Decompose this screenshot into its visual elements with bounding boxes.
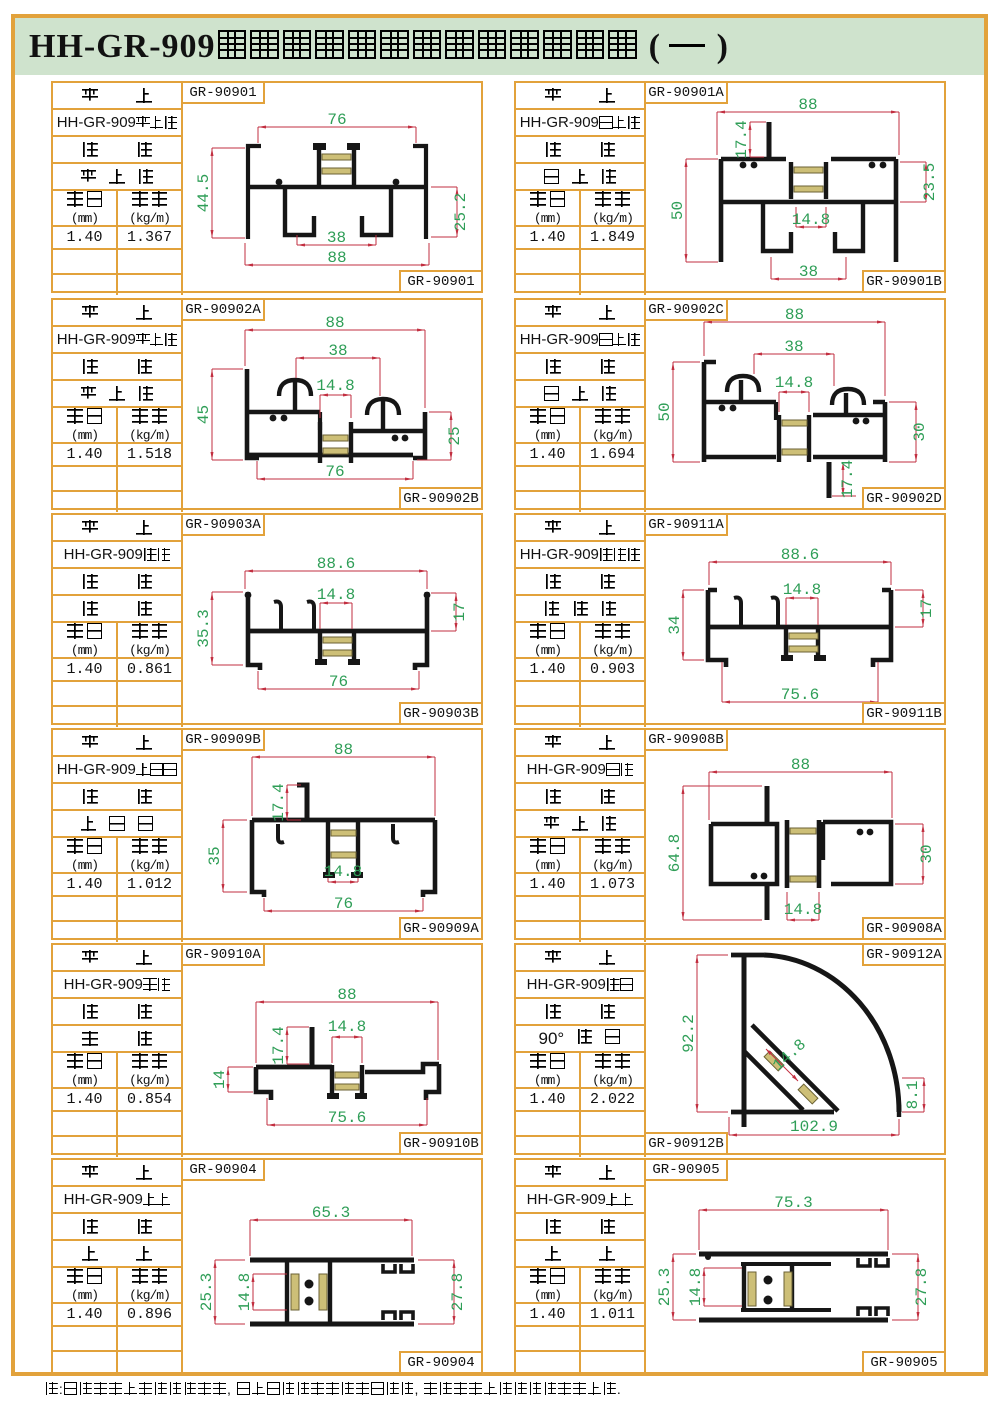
svg-text:8.1: 8.1 [904,1081,922,1110]
svg-text:14.8: 14.8 [775,374,813,392]
svg-text:14.8: 14.8 [324,863,362,881]
svg-text:35: 35 [206,846,224,865]
svg-text:14.8: 14.8 [236,1273,254,1311]
svg-text:14.8: 14.8 [317,586,355,604]
svg-text:25.3: 25.3 [198,1273,216,1311]
svg-text:30: 30 [918,844,936,863]
svg-text:27.8: 27.8 [449,1273,467,1311]
svg-text:17: 17 [451,602,469,621]
svg-text:14.8: 14.8 [783,581,821,599]
svg-text:75.6: 75.6 [781,686,819,704]
svg-text:27.8: 27.8 [913,1268,931,1306]
svg-text:14.8: 14.8 [316,377,354,395]
svg-text:88.6: 88.6 [317,555,355,573]
svg-text:75.3: 75.3 [774,1194,812,1212]
svg-text:88: 88 [327,249,346,267]
svg-text:38: 38 [328,342,347,360]
svg-text:75.6: 75.6 [328,1109,366,1127]
svg-text:88: 88 [337,986,356,1004]
svg-text:88: 88 [798,96,817,114]
svg-text:30: 30 [911,422,929,441]
svg-text:44.5: 44.5 [195,174,213,212]
svg-text:34: 34 [666,615,684,634]
svg-text:76: 76 [325,463,344,481]
svg-text:92.2: 92.2 [680,1014,698,1052]
svg-text:25: 25 [446,426,464,445]
svg-text:38: 38 [799,263,818,281]
svg-text:64.8: 64.8 [666,834,684,872]
svg-text:88: 88 [325,314,344,332]
svg-text:102.9: 102.9 [790,1118,838,1136]
svg-text:38: 38 [784,338,803,356]
svg-text:17.4: 17.4 [270,1026,288,1064]
svg-text:17.4: 17.4 [733,120,751,158]
svg-text:38: 38 [327,229,346,247]
svg-text:88: 88 [334,741,353,759]
svg-text:50: 50 [656,402,674,421]
svg-text:14.8: 14.8 [769,1036,810,1075]
svg-text:23.5: 23.5 [921,163,939,201]
svg-text:76: 76 [329,673,348,691]
svg-text:14.8: 14.8 [784,901,822,919]
svg-text:14.8: 14.8 [792,211,830,229]
svg-text:76: 76 [327,111,346,129]
svg-text:88.6: 88.6 [781,546,819,564]
svg-text:45: 45 [195,405,213,424]
svg-text:50: 50 [669,201,687,220]
svg-text:25.3: 25.3 [656,1268,674,1306]
svg-text:76: 76 [334,895,353,913]
svg-text:14.8: 14.8 [328,1018,366,1036]
svg-text:25.2: 25.2 [452,193,470,231]
svg-text:14.8: 14.8 [687,1268,705,1306]
svg-text:17: 17 [918,599,936,618]
svg-text:88: 88 [785,306,804,324]
svg-text:35.3: 35.3 [195,609,213,647]
svg-text:14: 14 [211,1070,229,1089]
svg-text:17.4: 17.4 [270,783,288,821]
svg-text:65.3: 65.3 [312,1204,350,1222]
svg-text:88: 88 [791,756,810,774]
svg-text:17.4: 17.4 [839,460,857,498]
